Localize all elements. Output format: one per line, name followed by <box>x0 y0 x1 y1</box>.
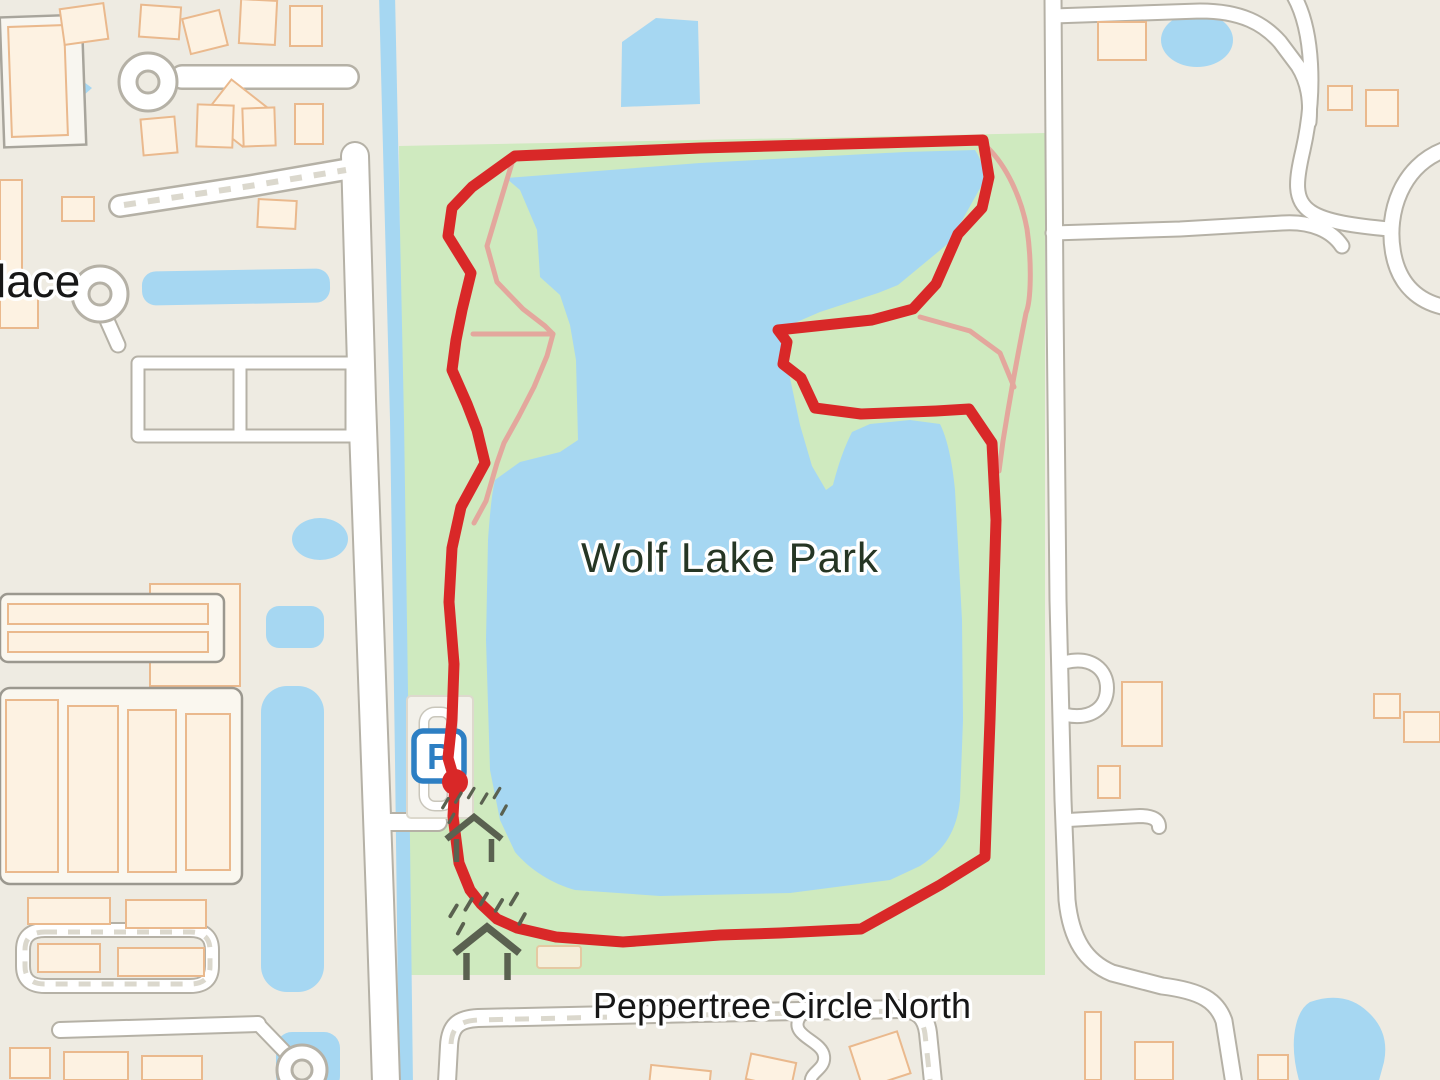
lake-water <box>486 150 983 896</box>
partial-street-label: lace <box>0 255 80 307</box>
park-name-label: Wolf Lake Park <box>581 534 879 581</box>
route-start-marker <box>442 769 468 795</box>
map-canvas[interactable]: P Wolf Lake Park Peppertree Circle North… <box>0 0 1440 1080</box>
street-name-label: Peppertree Circle North <box>593 985 971 1026</box>
